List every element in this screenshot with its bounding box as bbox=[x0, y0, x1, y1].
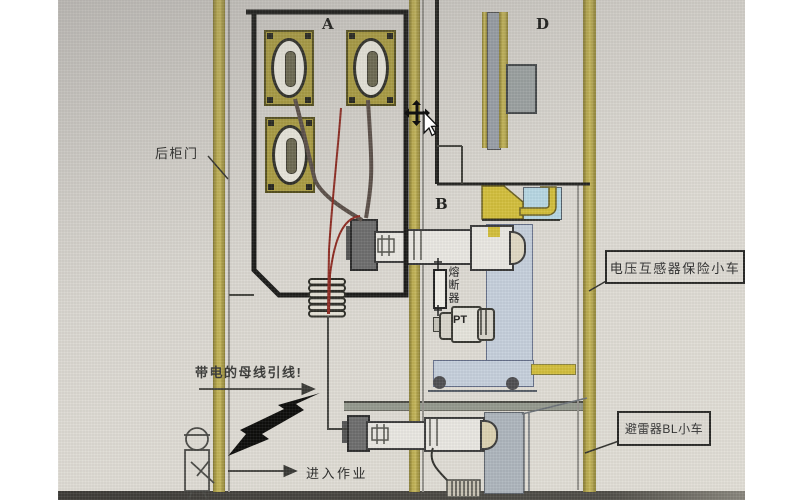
pointer-arrow-icon bbox=[424, 112, 438, 136]
screenshot-stage: 后柜门 A D B 熔断器 PT 电压互感器保险小车 避雷器BL小车 带电的母线… bbox=[0, 0, 800, 500]
mouse-cursor bbox=[0, 0, 800, 500]
